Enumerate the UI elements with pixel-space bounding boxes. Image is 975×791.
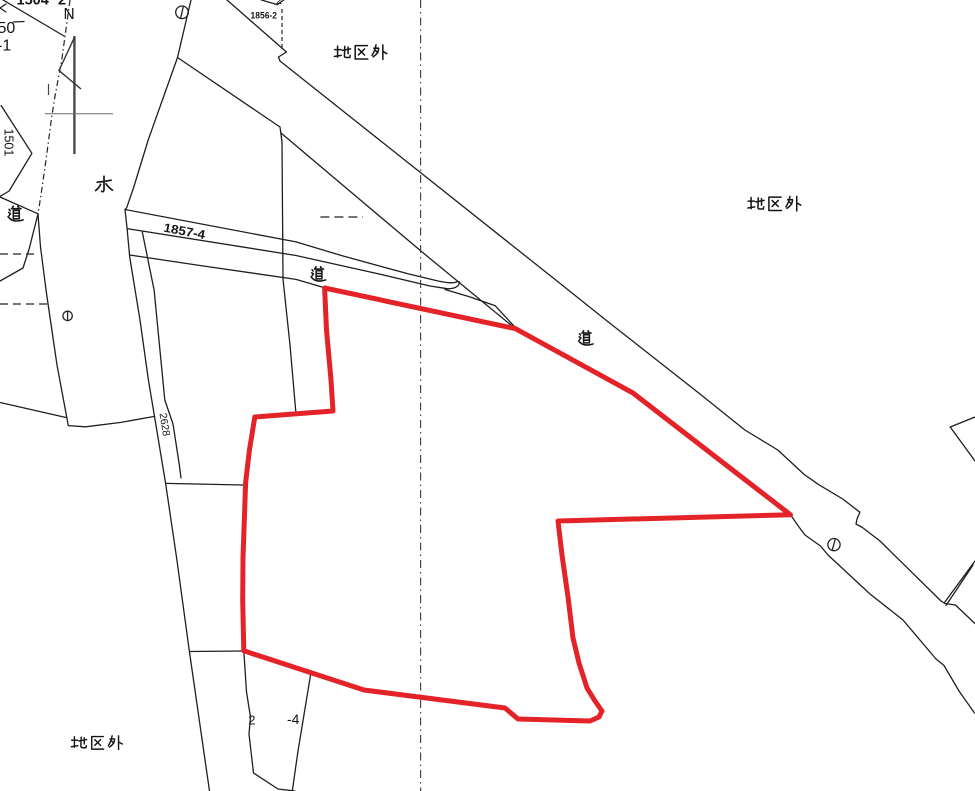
svg-text:2: 2 <box>248 713 255 728</box>
svg-text:1856-2: 1856-2 <box>251 11 278 22</box>
svg-text:1504: 1504 <box>17 0 49 9</box>
svg-text:2: 2 <box>276 0 282 7</box>
svg-text:50: 50 <box>0 20 15 37</box>
svg-text:1501: 1501 <box>2 129 16 157</box>
svg-text:N: N <box>64 6 75 23</box>
svg-text:-1: -1 <box>0 38 11 55</box>
svg-text:-4: -4 <box>287 711 300 727</box>
